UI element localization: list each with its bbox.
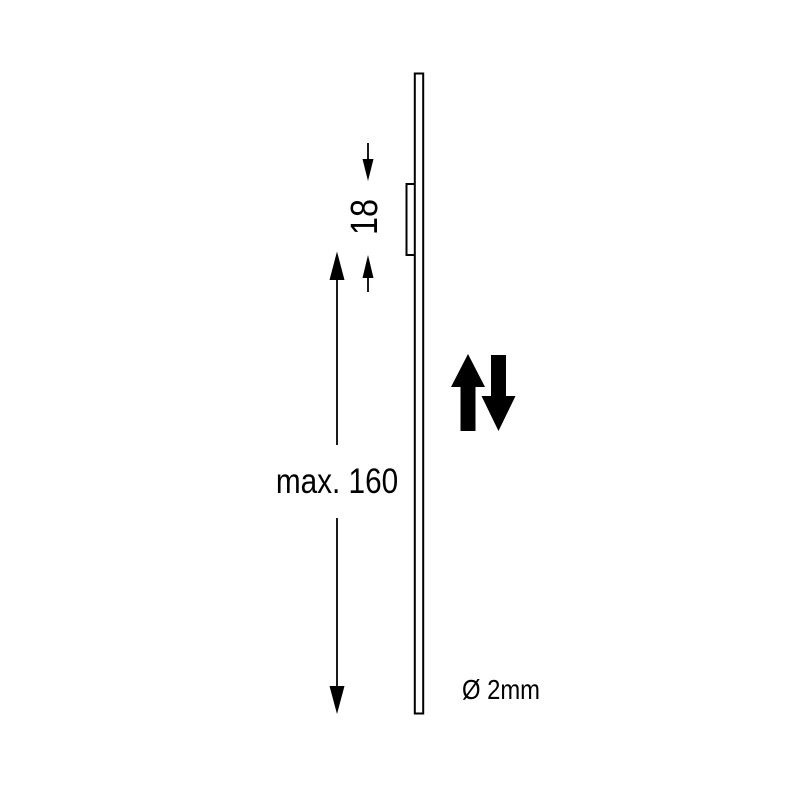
bracket-height-label: 18	[346, 199, 384, 235]
max-length-label: max. 160	[276, 464, 398, 499]
technical-diagram: 18 max. 160 Ø 2mm	[0, 0, 800, 800]
dim-18-bottom-arrowhead-icon	[363, 255, 374, 278]
dim-160-top-arrowhead-icon	[330, 252, 345, 281]
dim-160-bottom-arrowhead-icon	[330, 686, 345, 714]
diagram-canvas	[0, 0, 800, 800]
diameter-label: Ø 2mm	[462, 675, 540, 705]
down-arrow-icon	[482, 355, 516, 431]
dim-18-top-arrowhead-icon	[363, 159, 374, 181]
plate-side-view-outline	[415, 74, 423, 714]
up-arrow-icon	[451, 354, 485, 431]
